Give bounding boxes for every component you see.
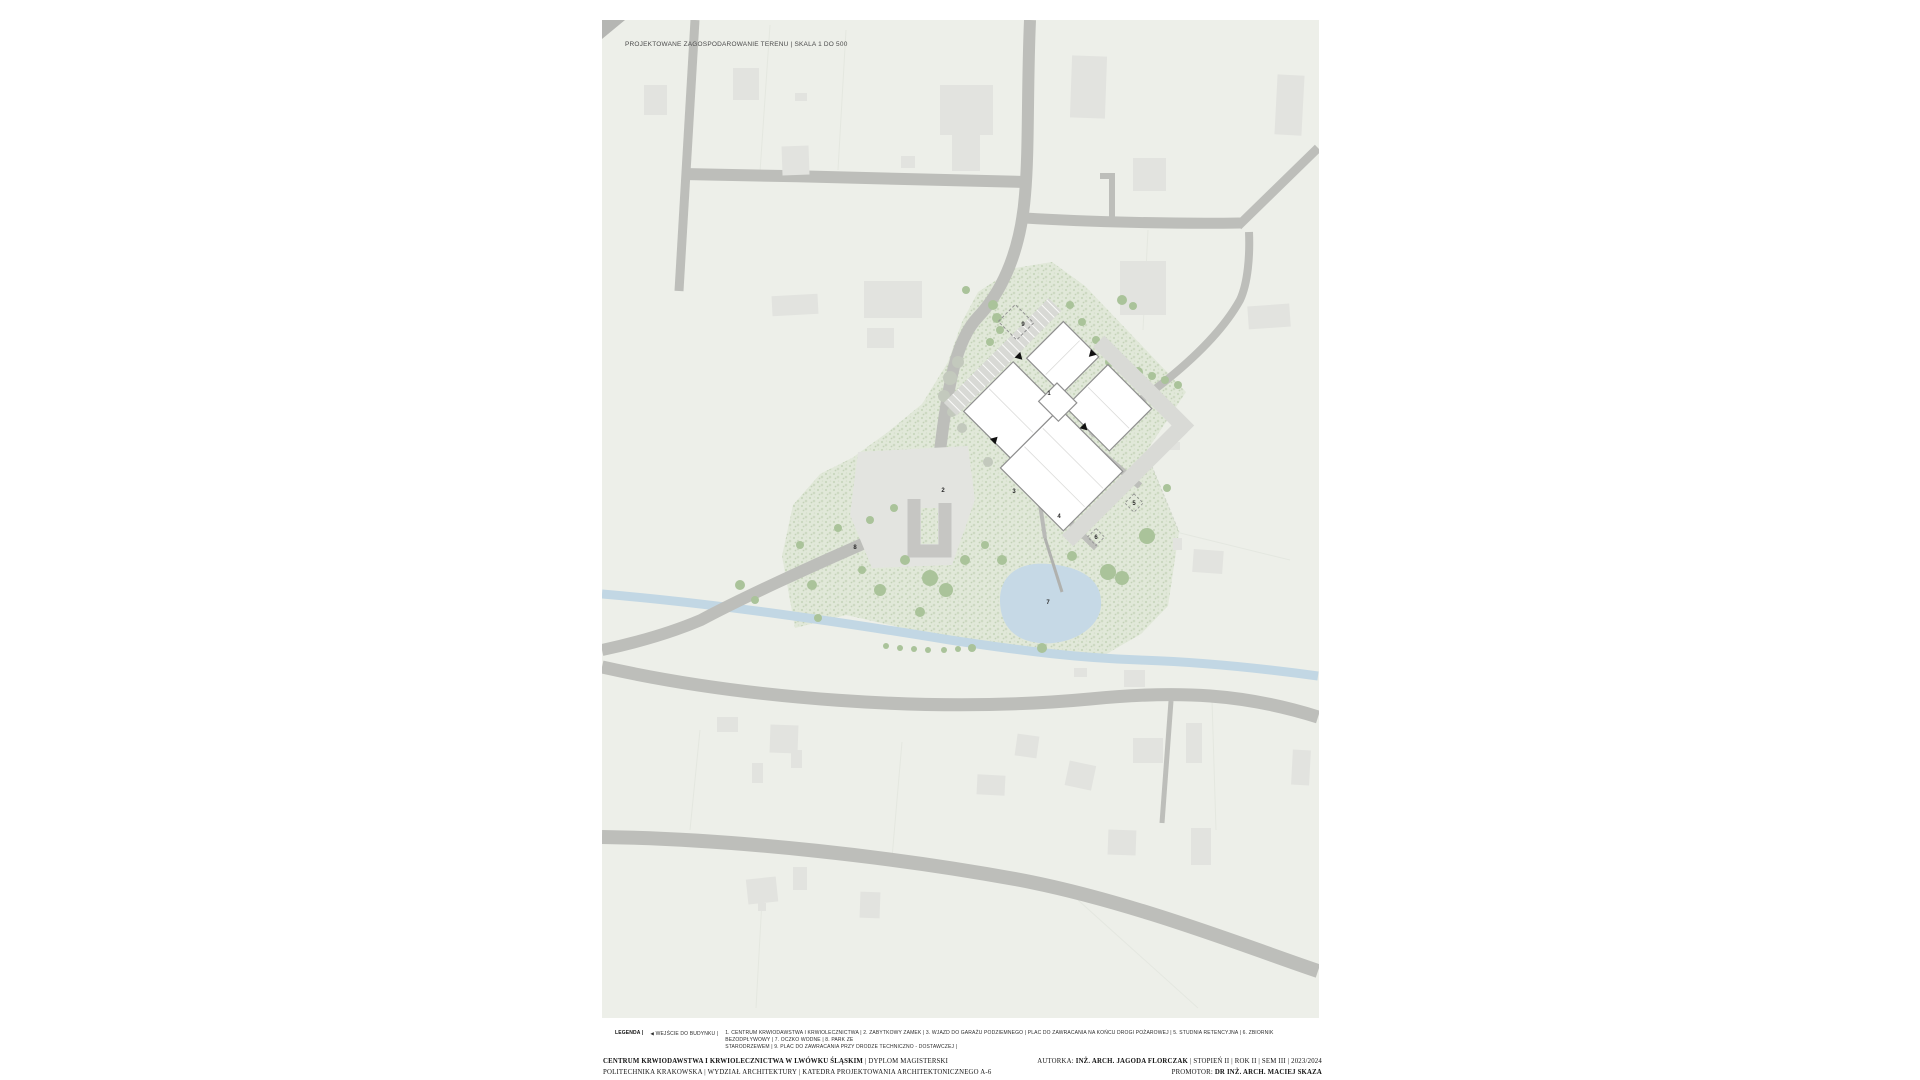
legend: LEGENDA | ◀ WEJŚCIE DO BUDYNKU | 1. CENT… <box>615 1030 1315 1051</box>
presentation-board: 123456789 PROJEKTOWANE ZAGOSPODAROWANIE … <box>0 0 1920 1080</box>
legend-items-line2: STARODRZEWEM | 9. PLAC DO ZAWRACANIA PRZ… <box>725 1044 957 1050</box>
author-name: INŻ. ARCH. JAGODA FLORCZAK <box>1076 1058 1188 1065</box>
site-plan-svg: 123456789 <box>602 20 1319 1018</box>
legend-items-line1: 1. CENTRUM KRWIODAWSTWA I KRWIOLECZNICTW… <box>725 1030 1273 1043</box>
legend-entrance: ◀ WEJŚCIE DO BUDYNKU | <box>650 1030 718 1038</box>
footer-project-title: CENTRUM KRWIODAWSTWA I KRWIOLECZNICTWA W… <box>603 1056 991 1067</box>
footer-author-info: AUTORKA: INŻ. ARCH. JAGODA FLORCZAK | ST… <box>1037 1056 1322 1078</box>
project-name: CENTRUM KRWIODAWSTWA I KRWIOLECZNICTWA W… <box>603 1058 863 1065</box>
legend-entrance-text: WEJŚCIE DO BUDYNKU | <box>656 1031 719 1037</box>
footer-author-line: AUTORKA: INŻ. ARCH. JAGODA FLORCZAK | ST… <box>1037 1056 1322 1067</box>
drawing-title: PROJEKTOWANE ZAGOSPODAROWANIE TERENU | S… <box>625 41 848 48</box>
castle-courtyard <box>921 508 938 544</box>
legend-items: 1. CENTRUM KRWIODAWSTWA I KRWIOLECZNICTW… <box>725 1030 1295 1051</box>
entrance-arrow-icon: ◀ <box>650 1031 654 1036</box>
legend-label: LEGENDA | <box>615 1030 643 1037</box>
project-type: | DYPLOM MAGISTERSKI <box>863 1058 948 1065</box>
author-prefix: AUTORKA: <box>1037 1058 1076 1065</box>
site-plan-map: 123456789 <box>602 20 1319 1018</box>
castle <box>850 446 975 568</box>
promoter-name: DR INŻ. ARCH. MACIEJ SKAZA <box>1215 1069 1322 1076</box>
footer-university: POLITECHNIKA KRAKOWSKA | WYDZIAŁ ARCHITE… <box>603 1067 991 1078</box>
footer-promoter-line: PROMOTOR: DR INŻ. ARCH. MACIEJ SKAZA <box>1037 1067 1322 1078</box>
footer-project-info: CENTRUM KRWIODAWSTWA I KRWIOLECZNICTWA W… <box>603 1056 991 1078</box>
promoter-prefix: PROMOTOR: <box>1172 1069 1215 1076</box>
author-meta: | STOPIEŃ II | ROK II | SEM III | 2023/2… <box>1188 1058 1322 1065</box>
